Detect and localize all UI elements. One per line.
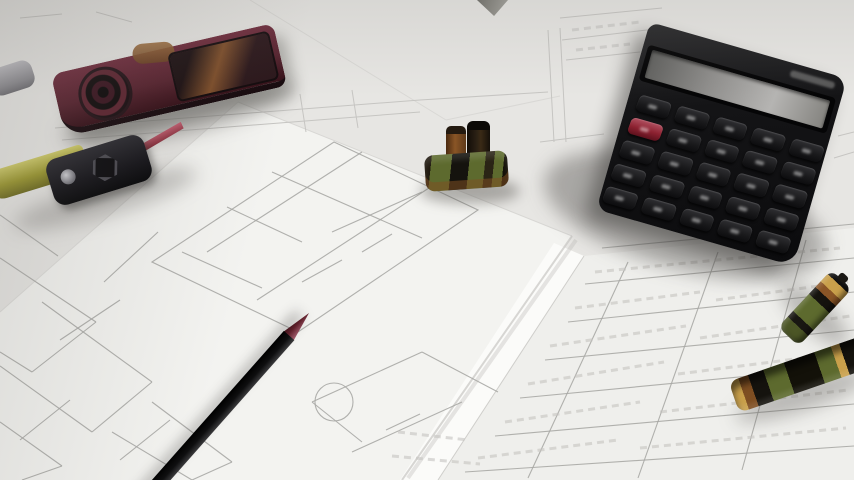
blueprint-desk-photo [0, 0, 854, 480]
calculator-key [725, 196, 762, 221]
calculator-key [716, 218, 753, 243]
calculator-key-red [627, 117, 664, 142]
calculator-key [686, 185, 723, 210]
calculator-key [788, 138, 825, 163]
calculator-key [610, 163, 647, 188]
calculator-key [673, 105, 710, 130]
calculator-key [780, 161, 817, 186]
calculator-key [648, 174, 685, 199]
calculator-key [750, 127, 787, 152]
knife-stud [59, 167, 78, 186]
calculator-key [711, 116, 748, 141]
calculator-key [602, 185, 639, 210]
calculator-key [703, 139, 740, 164]
calculator-key [640, 196, 677, 221]
calculator-key [763, 206, 800, 231]
gadget-dial [73, 61, 138, 126]
calculator-key [635, 94, 672, 119]
calculator-key [771, 184, 808, 209]
calculator-key [755, 229, 792, 254]
calculator-key [656, 151, 693, 176]
calculator-key [695, 162, 732, 187]
calculator-key [665, 128, 702, 153]
knife-hex-dial [91, 154, 118, 181]
calculator-key [741, 150, 778, 175]
calculator-key [678, 207, 715, 232]
calculator-key [618, 140, 655, 165]
calculator-key [733, 173, 770, 198]
battery-lying-center [424, 150, 509, 192]
